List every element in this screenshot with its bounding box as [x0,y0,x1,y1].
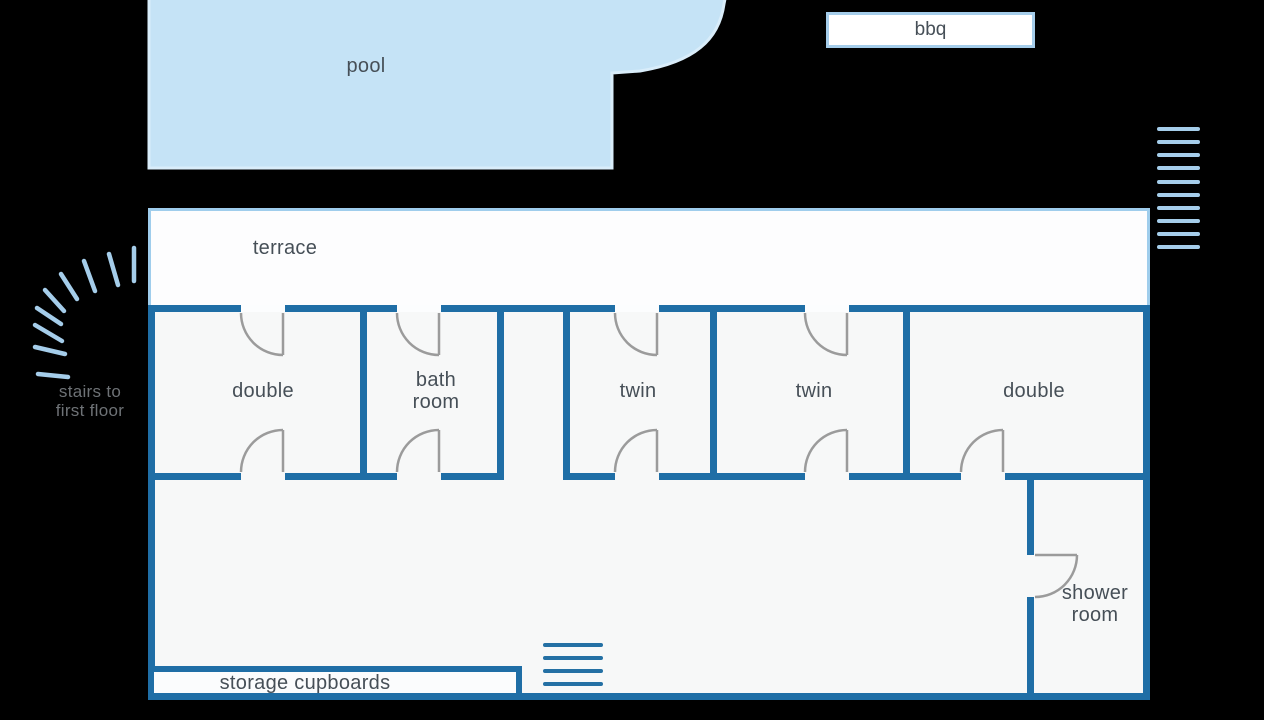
room-label-twin-left: twin [558,380,718,402]
doorway [397,305,441,312]
wall-segment [1143,305,1150,700]
wall-segment [148,473,241,480]
building-interior [148,305,1150,700]
room-label-twin-right: twin [734,380,894,402]
door-twin-left-top [613,312,659,358]
spiral-stairs-icon [25,240,150,385]
wall-segment [516,666,522,700]
wall-segment [903,305,910,480]
wall-segment [1027,597,1034,700]
wall-segment [285,305,397,312]
doorway [615,305,659,312]
room-label-shower: shower room [1035,582,1155,626]
door-double-left-bottom [239,427,285,473]
pool-label: pool [286,55,446,77]
wall-segment [441,305,615,312]
bbq-label: bbq [915,19,947,41]
doorway [241,305,285,312]
wall-segment [360,305,367,480]
terrace-label: terrace [205,237,365,259]
wall-segment [659,305,805,312]
room-label-double-left: double [183,380,343,402]
door-twin-left-bottom [613,427,659,473]
wall-segment [148,693,1150,700]
door-bathroom-bottom [395,427,441,473]
door-double-left-top [239,312,285,358]
room-label-storage: storage cupboards [155,672,455,694]
door-bathroom-top [395,312,441,358]
stairs-to-first-floor-label: stairs to first floor [10,382,170,420]
wall-segment [285,473,397,480]
wall-segment [148,305,241,312]
floor-plan: pool bbq stairs to first floor [0,0,1264,720]
room-label-bathroom: bath room [376,369,496,413]
room-label-double-right: double [954,380,1114,402]
pool-shape [0,0,740,180]
doorway [805,305,849,312]
wall-segment [1027,473,1034,555]
wall-segment [497,305,504,480]
door-twin-right-bottom [803,427,849,473]
wall-segment [563,473,615,480]
bbq-area: bbq [826,12,1035,48]
door-twin-right-top [803,312,849,358]
wall-segment [659,473,805,480]
wall-segment [441,473,504,480]
wall-segment [148,305,155,700]
door-double-right-bottom [959,427,1005,473]
wall-segment [849,305,1150,312]
